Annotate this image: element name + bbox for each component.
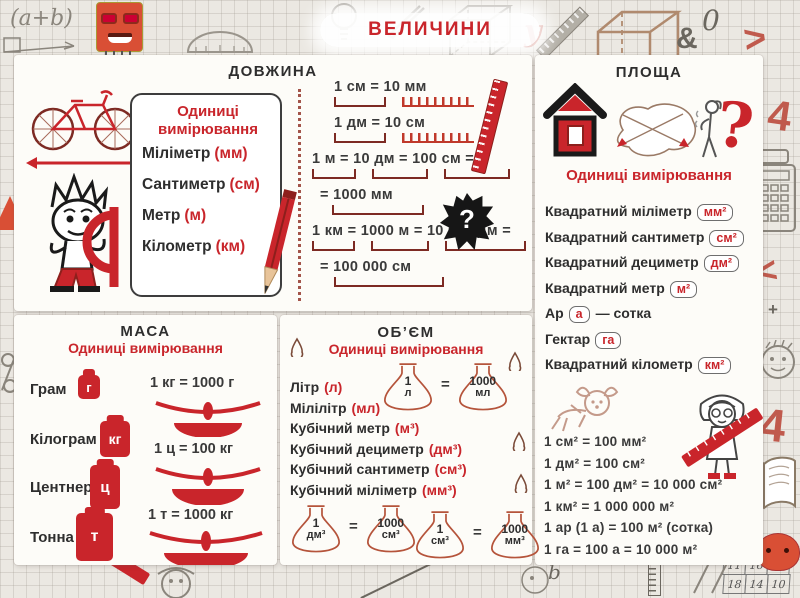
mass-unit-abbr: т [91,528,99,546]
four-doodle-top: 4 [765,91,795,142]
length-unit-abbr: (мм) [214,145,247,162]
length-conversions: 1 см = 10 мм 1 дм = 10 см 1 м = 10 дм = … [312,79,542,295]
mass-unit-name: Тонна [30,529,74,546]
mass-heading: МАСА [14,315,277,340]
flask-value: 1000 [501,522,528,536]
length-units-box-title: Одиниці вимірювання [142,103,274,139]
gram-weight-icon: г [78,375,100,399]
area-unit-row: Ара— сотка [545,305,759,323]
area-unit-name: Квадратний дециметр [545,254,699,270]
area-conversion: 1 км² = 1 000 000 м² [544,496,759,518]
area-unit-name: Квадратний сантиметр [545,229,704,245]
flask-value: 1 [437,522,444,536]
length-unit-row: Кілометр(км) [142,238,274,256]
area-unit-row: Квадратний кілометркм² [545,356,759,374]
volume-unit-row: Кубічний міліметр(мм³) [290,480,467,501]
dotted-divider [298,89,301,301]
area-heading: ПЛОЩА [535,55,763,81]
flask-unit: мм³ [485,536,545,548]
flask-value: 1000 [377,516,404,530]
length-unit-abbr: (км) [216,238,246,255]
area-unit-name: Квадратний метр [545,280,665,296]
volume-unit-name: Літр [290,379,319,395]
mass-unit-name: Грам [30,381,67,398]
volume-unit-row: Кубічний метр(м³) [290,418,467,439]
mass-unit-abbr: кг [109,431,122,447]
area-unit-name: Гектар [545,331,590,347]
area-unit-row: Гектарга [545,331,759,349]
length-conversion: 1 см = 10 мм [334,79,542,95]
area-conversion: 1 ар (1 а) = 100 м² (сотка) [544,517,759,539]
area-unit-badge: см² [709,230,743,247]
volume-unit-abbr: (мм³) [422,482,457,498]
area-section: ПЛОЩА ? Одиниці вимірювання Квадратний м… [535,55,763,565]
segment-icons [312,169,542,180]
area-units-list: Квадратний міліметрмм² Квадратний сантим… [545,203,759,382]
flask-value: 1000 [469,374,496,388]
scales-icon [152,461,264,505]
poster-title: ВЕЛИЧИНИ [368,19,492,41]
volume-unit-name: Мілілітр [290,400,347,416]
area-unit-suffix: — сотка [596,305,652,321]
ampersand-doodle: & [676,22,698,56]
bicycle-icon [26,83,144,171]
flask-unit: см³ [410,536,470,548]
volume-heading: ОБ’ЄМ [280,315,532,341]
mass-unit-abbr: ц [100,479,109,496]
area-conversion: 1 см² = 100 мм² [544,431,759,453]
droplet-icon [514,473,528,493]
house-icon [543,83,607,163]
protractor-doodle [180,30,260,54]
length-unit-abbr: (м) [184,207,206,224]
volume-unit-name: Кубічний сантиметр [290,461,430,477]
volume-unit-abbr: (м³) [395,420,419,436]
segment-icons [320,205,542,216]
kilogram-weight-icon: кг [100,421,130,457]
droplet-icon [512,431,526,451]
volume-unit-abbr: (см³) [435,461,467,477]
droplet-icon [290,337,304,357]
scales-icon [152,395,264,437]
flask-unit: мл [453,388,513,400]
flask-1000ml: 1000мл [453,359,513,413]
equals-sign: = [473,524,482,561]
flask-1000mm3: 1000мм³ [485,507,545,561]
area-unit-name: Квадратний міліметр [545,203,692,219]
segment-icons [312,241,542,252]
area-unit-name: Квадратний кілометр [545,356,693,372]
area-conversion: 1 м² = 100 дм² = 10 000 см² [544,474,759,496]
length-unit-abbr: (см) [229,176,259,193]
red-square-character [96,2,143,52]
flask-value: 1 [313,516,320,530]
flask-pair: 1дм³ = 1000см³ [286,501,421,555]
dog-doodle [545,383,621,435]
flask-pair: 1л = 1000мл [378,359,513,413]
mystery-silhouette: ? [438,191,496,253]
gray-ruler-doodle [536,6,589,59]
mass-unit-abbr: г [86,380,91,395]
flask-unit: дм³ [286,530,346,542]
area-unit-badge: м² [670,281,697,298]
volume-unit-name: Кубічний міліметр [290,482,417,498]
length-unit-name: Міліметр [142,145,210,162]
mass-section: МАСА Одиниці вимірювання Грам г Кілограм… [14,315,277,565]
area-conversions: 1 см² = 100 мм² 1 дм² = 100 см² 1 м² = 1… [544,431,759,560]
equals-sign: = [349,518,358,555]
volume-unit-row: Кубічний дециметр(дм³) [290,439,467,460]
mass-equation: 1 кг = 1000 г [150,375,234,391]
formula-doodle: (a+b) [10,6,73,31]
segment-icons [334,97,542,108]
grid-number: 14 [744,574,768,594]
area-unit-badge: дм² [704,255,739,272]
tonne-weight-icon: т [76,513,113,561]
protractor-icon [80,205,126,289]
area-conversion: 1 га = 100 а = 10 000 м² [544,539,759,561]
volume-unit-name: Кубічний дециметр [290,441,424,457]
face-doodle [758,340,798,382]
centner-weight-icon: ц [90,465,120,509]
length-unit-row: Метр(м) [142,207,274,225]
mass-equation: 1 т = 1000 кг [148,507,233,523]
flask-1l: 1л [378,359,438,413]
length-conversion: = 1000 мм [320,187,542,203]
length-units-box: Одиниці вимірювання Міліметр(мм) Сантиме… [130,93,282,297]
volume-unit-name: Кубічний метр [290,420,390,436]
area-unit-badge: а [569,306,590,323]
area-icons: ? [535,81,763,171]
blob-shape-icon [605,97,701,163]
mass-unit-name: Центнер [30,479,92,496]
flask-1dm3: 1дм³ [286,501,346,555]
area-unit-row: Квадратний міліметрмм² [545,203,759,221]
scales-icon [146,525,266,565]
equals-sign: = [441,376,450,413]
area-conversion: 1 дм² = 100 см² [544,453,759,475]
area-unit-name: Ар [545,305,564,321]
area-question-mark: ? [713,87,757,163]
area-unit-row: Квадратний дециметрдм² [545,254,759,272]
volume-unit-abbr: (л) [324,379,342,395]
zero-doodle: 0 [702,4,720,37]
area-unit-row: Квадратний сантиметрсм² [545,229,759,247]
length-unit-name: Сантиметр [142,176,225,193]
area-unit-badge: мм² [697,204,734,221]
area-subtitle: Одиниці вимірювання [535,167,763,185]
volume-unit-abbr: (мл) [352,400,381,416]
mass-unit-name: Кілограм [30,431,97,448]
volume-unit-abbr: (дм³) [429,441,462,457]
volume-section: ОБ’ЄМ Одиниці вимірювання Літр(л) Мілілі… [280,315,532,565]
length-unit-name: Метр [142,207,180,224]
length-unit-row: Міліметр(мм) [142,145,274,163]
poster-title-band: ВЕЛИЧИНИ [320,13,540,47]
mystery-question-mark: ? [438,191,496,253]
gnome-face-doodle [148,560,204,598]
area-unit-row: Квадратний метрм² [545,280,759,298]
flask-1cm3: 1см³ [410,507,470,561]
mass-subtitle: Одиниці вимірювання [14,340,277,357]
length-conversion: 1 м = 10 дм = 100 см = [312,151,542,167]
length-unit-name: Кілометр [142,238,212,255]
volume-subtitle: Одиниці вимірювання [280,341,532,358]
length-section: ДОВЖИНА Одиниці вимірювання Мілі [14,55,532,311]
length-heading: ДОВЖИНА [14,55,532,80]
grid-number: 10 [766,574,790,594]
area-unit-badge: га [595,332,621,349]
flask-value: 1 [405,374,412,388]
segment-icons [320,277,542,288]
length-conversion: 1 дм = 10 см [334,115,542,131]
flask-pair: 1см³ = 1000мм³ [410,507,545,561]
volume-unit-row: Кубічний сантиметр(см³) [290,459,467,480]
segment-icons [334,133,542,144]
length-conversion: = 100 000 см [320,259,542,275]
mass-equation: 1 ц = 100 кг [154,441,233,457]
length-unit-row: Сантиметр(см) [142,176,274,194]
length-conversion: 1 км = 1000 м = 10 000 дм = [312,223,542,239]
flask-unit: л [378,388,438,400]
area-unit-badge: км² [698,357,732,374]
